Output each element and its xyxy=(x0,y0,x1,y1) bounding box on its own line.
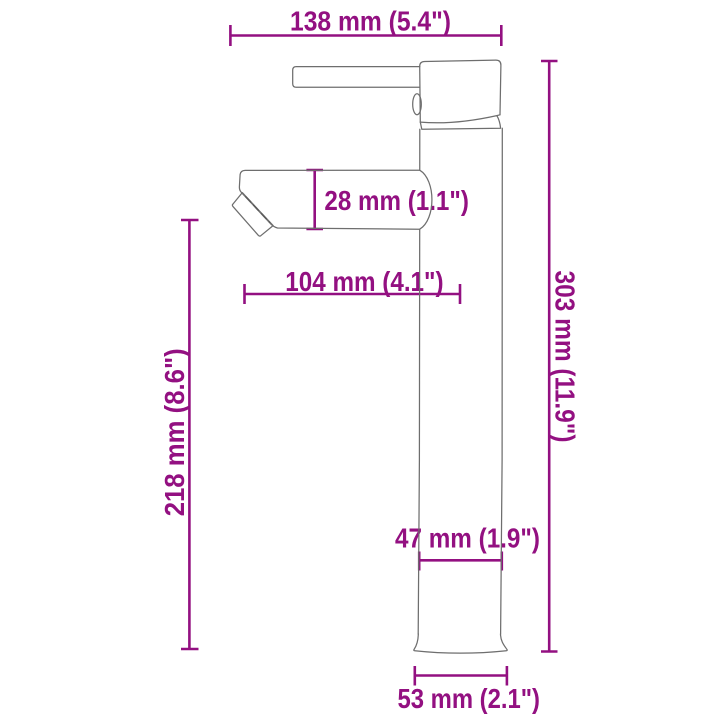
svg-text:303 mm (11.9"): 303 mm (11.9") xyxy=(549,271,580,443)
svg-text:138 mm (5.4"): 138 mm (5.4") xyxy=(290,6,451,37)
svg-text:53 mm (2.1"): 53 mm (2.1") xyxy=(398,683,541,714)
svg-text:28 mm (1.1"): 28 mm (1.1") xyxy=(324,185,469,216)
svg-text:47 mm (1.9"): 47 mm (1.9") xyxy=(395,523,540,554)
svg-text:218 mm (8.6"): 218 mm (8.6") xyxy=(159,348,190,516)
